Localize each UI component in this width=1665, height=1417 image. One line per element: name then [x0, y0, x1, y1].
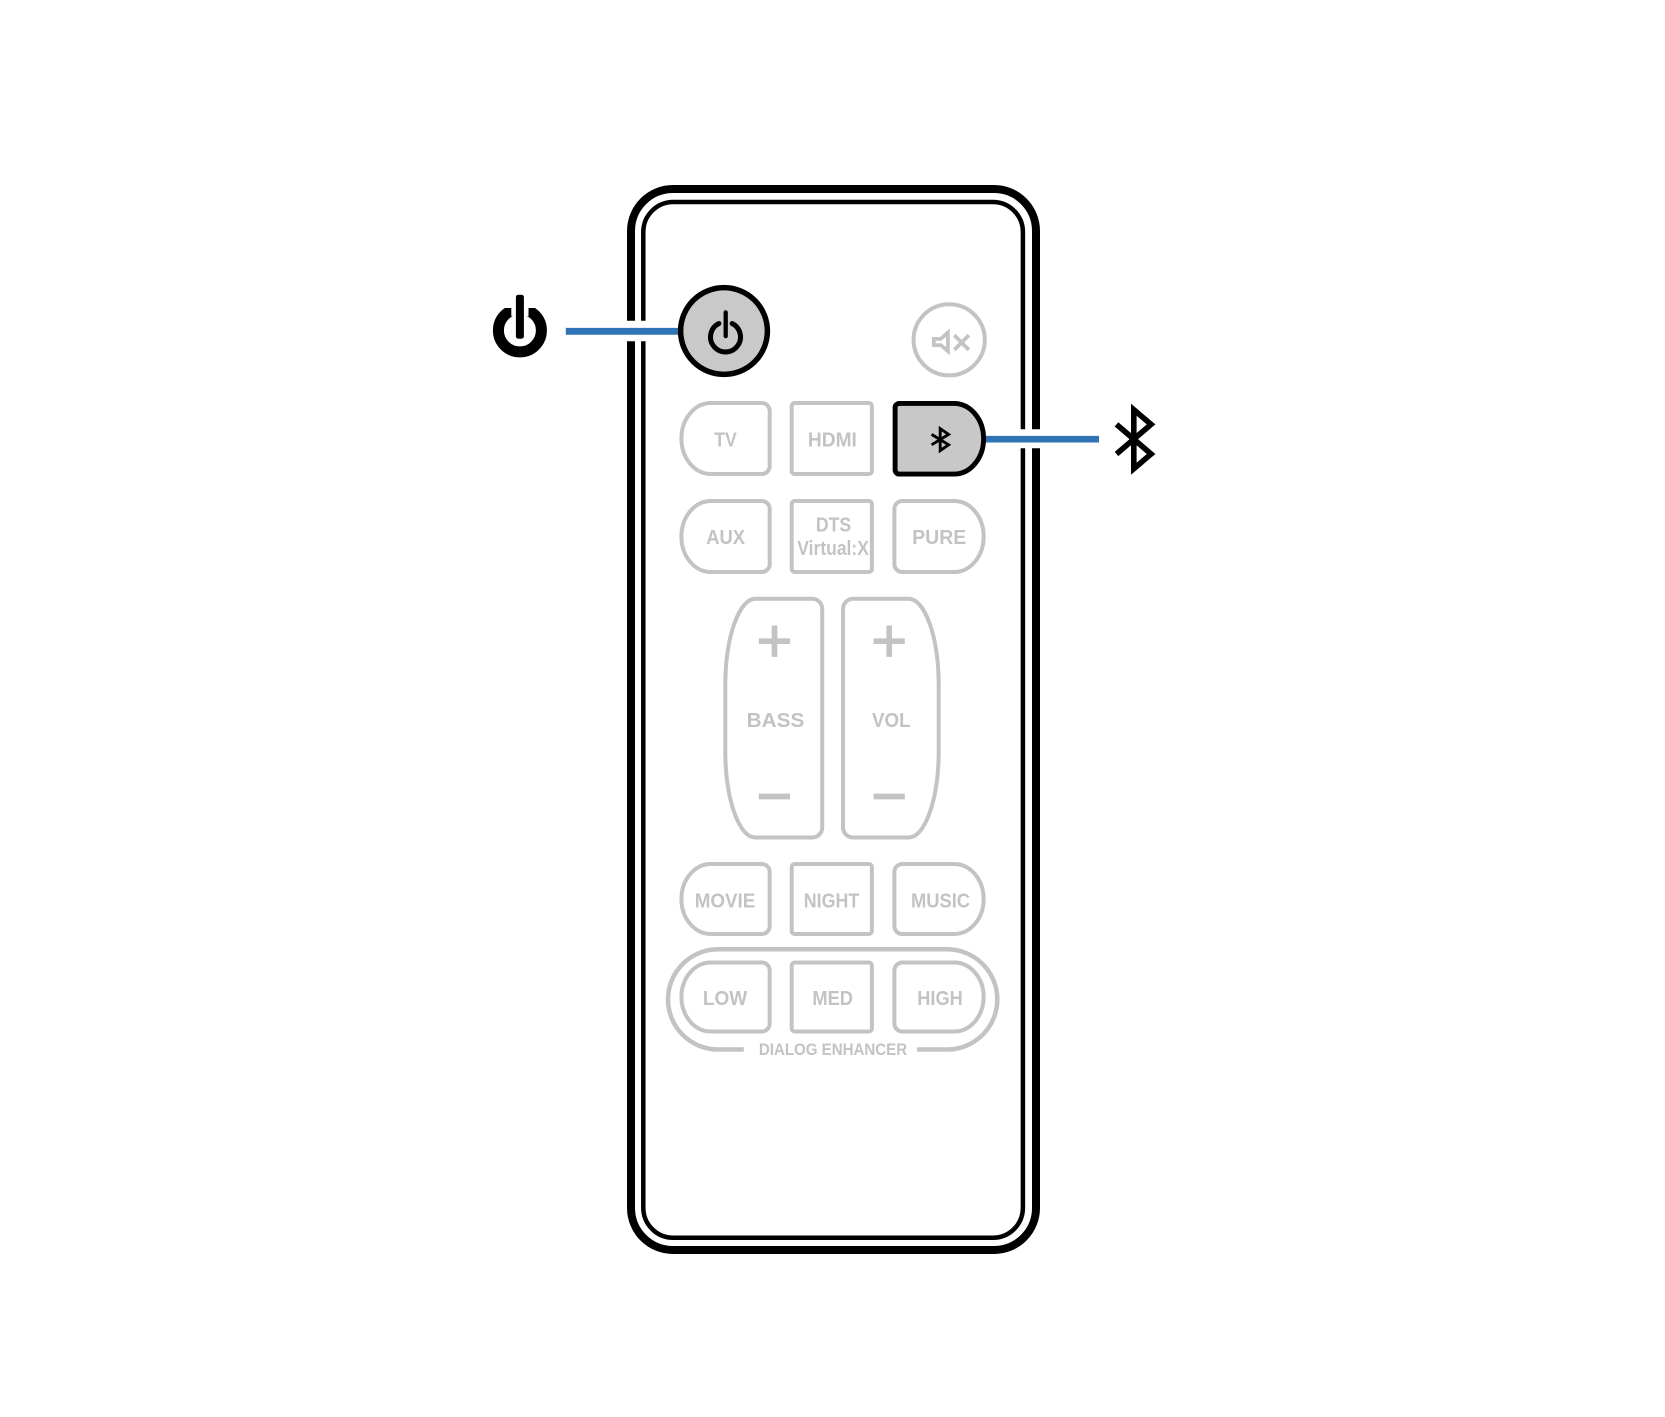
svg-text:Virtual:X: Virtual:X: [797, 537, 869, 560]
svg-text:NIGHT: NIGHT: [804, 889, 860, 912]
svg-text:LOW: LOW: [703, 987, 748, 1010]
svg-text:HDMI: HDMI: [808, 429, 857, 452]
svg-text:AUX: AUX: [706, 526, 745, 549]
svg-text:MOVIE: MOVIE: [695, 889, 756, 912]
svg-text:BASS: BASS: [747, 709, 805, 732]
svg-text:DTS: DTS: [816, 514, 851, 537]
svg-text:MUSIC: MUSIC: [911, 889, 970, 912]
svg-text:DIALOG ENHANCER: DIALOG ENHANCER: [759, 1040, 907, 1059]
svg-text:HIGH: HIGH: [917, 987, 962, 1010]
svg-text:MED: MED: [812, 987, 853, 1010]
svg-text:PURE: PURE: [912, 526, 966, 549]
svg-text:VOL: VOL: [872, 709, 911, 732]
svg-text:TV: TV: [714, 429, 737, 452]
